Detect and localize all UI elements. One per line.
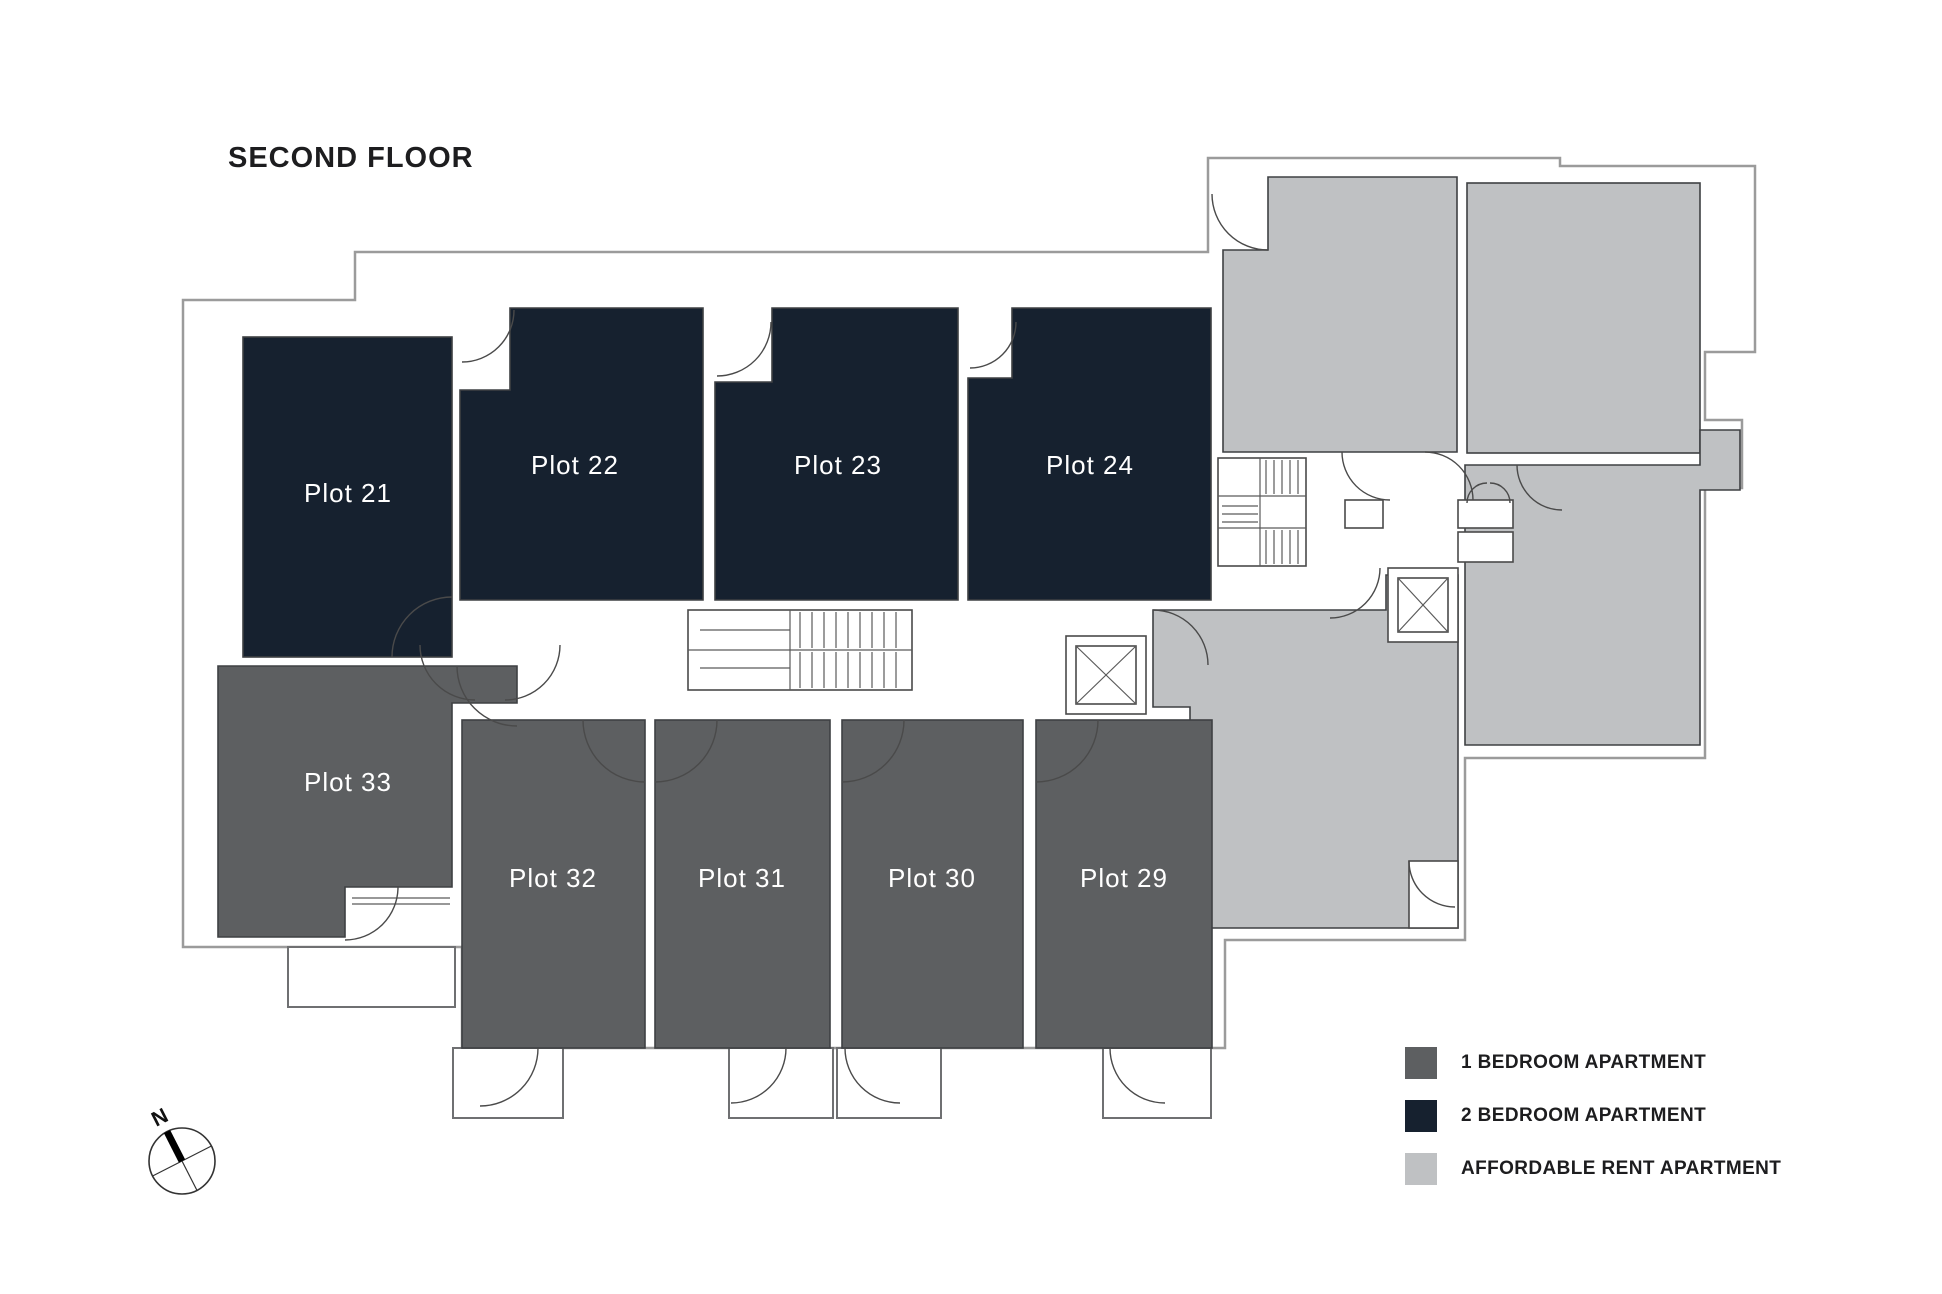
floor-plan-page: SECOND FLOOR <box>0 0 1942 1294</box>
stairs-icon <box>1218 458 1306 566</box>
plot-21-label: Plot 21 <box>304 478 392 508</box>
legend-item-affordable: AFFORDABLE RENT APARTMENT <box>1405 1153 1781 1185</box>
balcony <box>1103 1048 1211 1118</box>
two-bed-swatch-icon <box>1405 1100 1437 1132</box>
plot-31-label: Plot 31 <box>698 863 786 893</box>
compass-icon: N <box>108 1083 268 1243</box>
balcony <box>729 1048 833 1118</box>
plot-23-label: Plot 23 <box>794 450 882 480</box>
balcony <box>837 1048 941 1118</box>
door-recess <box>1409 861 1458 928</box>
legend-label: 2 BEDROOM APARTMENT <box>1461 1105 1706 1127</box>
balcony <box>453 1048 563 1118</box>
one-bed-swatch-icon <box>1405 1047 1437 1079</box>
elevator-icon <box>1388 568 1458 642</box>
plot-30-label: Plot 30 <box>888 863 976 893</box>
legend-item-1-bedroom: 1 BEDROOM APARTMENT <box>1405 1047 1781 1079</box>
balcony <box>288 947 455 1007</box>
legend-label: AFFORDABLE RENT APARTMENT <box>1461 1158 1781 1180</box>
legend: 1 BEDROOM APARTMENT 2 BEDROOM APARTMENT … <box>1405 1047 1781 1185</box>
affordable-swatch-icon <box>1405 1153 1437 1185</box>
plot-29-label: Plot 29 <box>1080 863 1168 893</box>
elevator-icon <box>1066 636 1146 714</box>
plot-24-label: Plot 24 <box>1046 450 1134 480</box>
affordable-apartment-room <box>1465 430 1740 745</box>
plot-22-label: Plot 22 <box>531 450 619 480</box>
legend-item-2-bedroom: 2 BEDROOM APARTMENT <box>1405 1100 1781 1132</box>
plot-33-label: Plot 33 <box>304 767 392 797</box>
affordable-apartment-room <box>1467 183 1700 453</box>
stairs-icon <box>688 610 912 690</box>
compass-north-label: N <box>148 1104 172 1131</box>
legend-label: 1 BEDROOM APARTMENT <box>1461 1052 1706 1074</box>
plot-32-label: Plot 32 <box>509 863 597 893</box>
